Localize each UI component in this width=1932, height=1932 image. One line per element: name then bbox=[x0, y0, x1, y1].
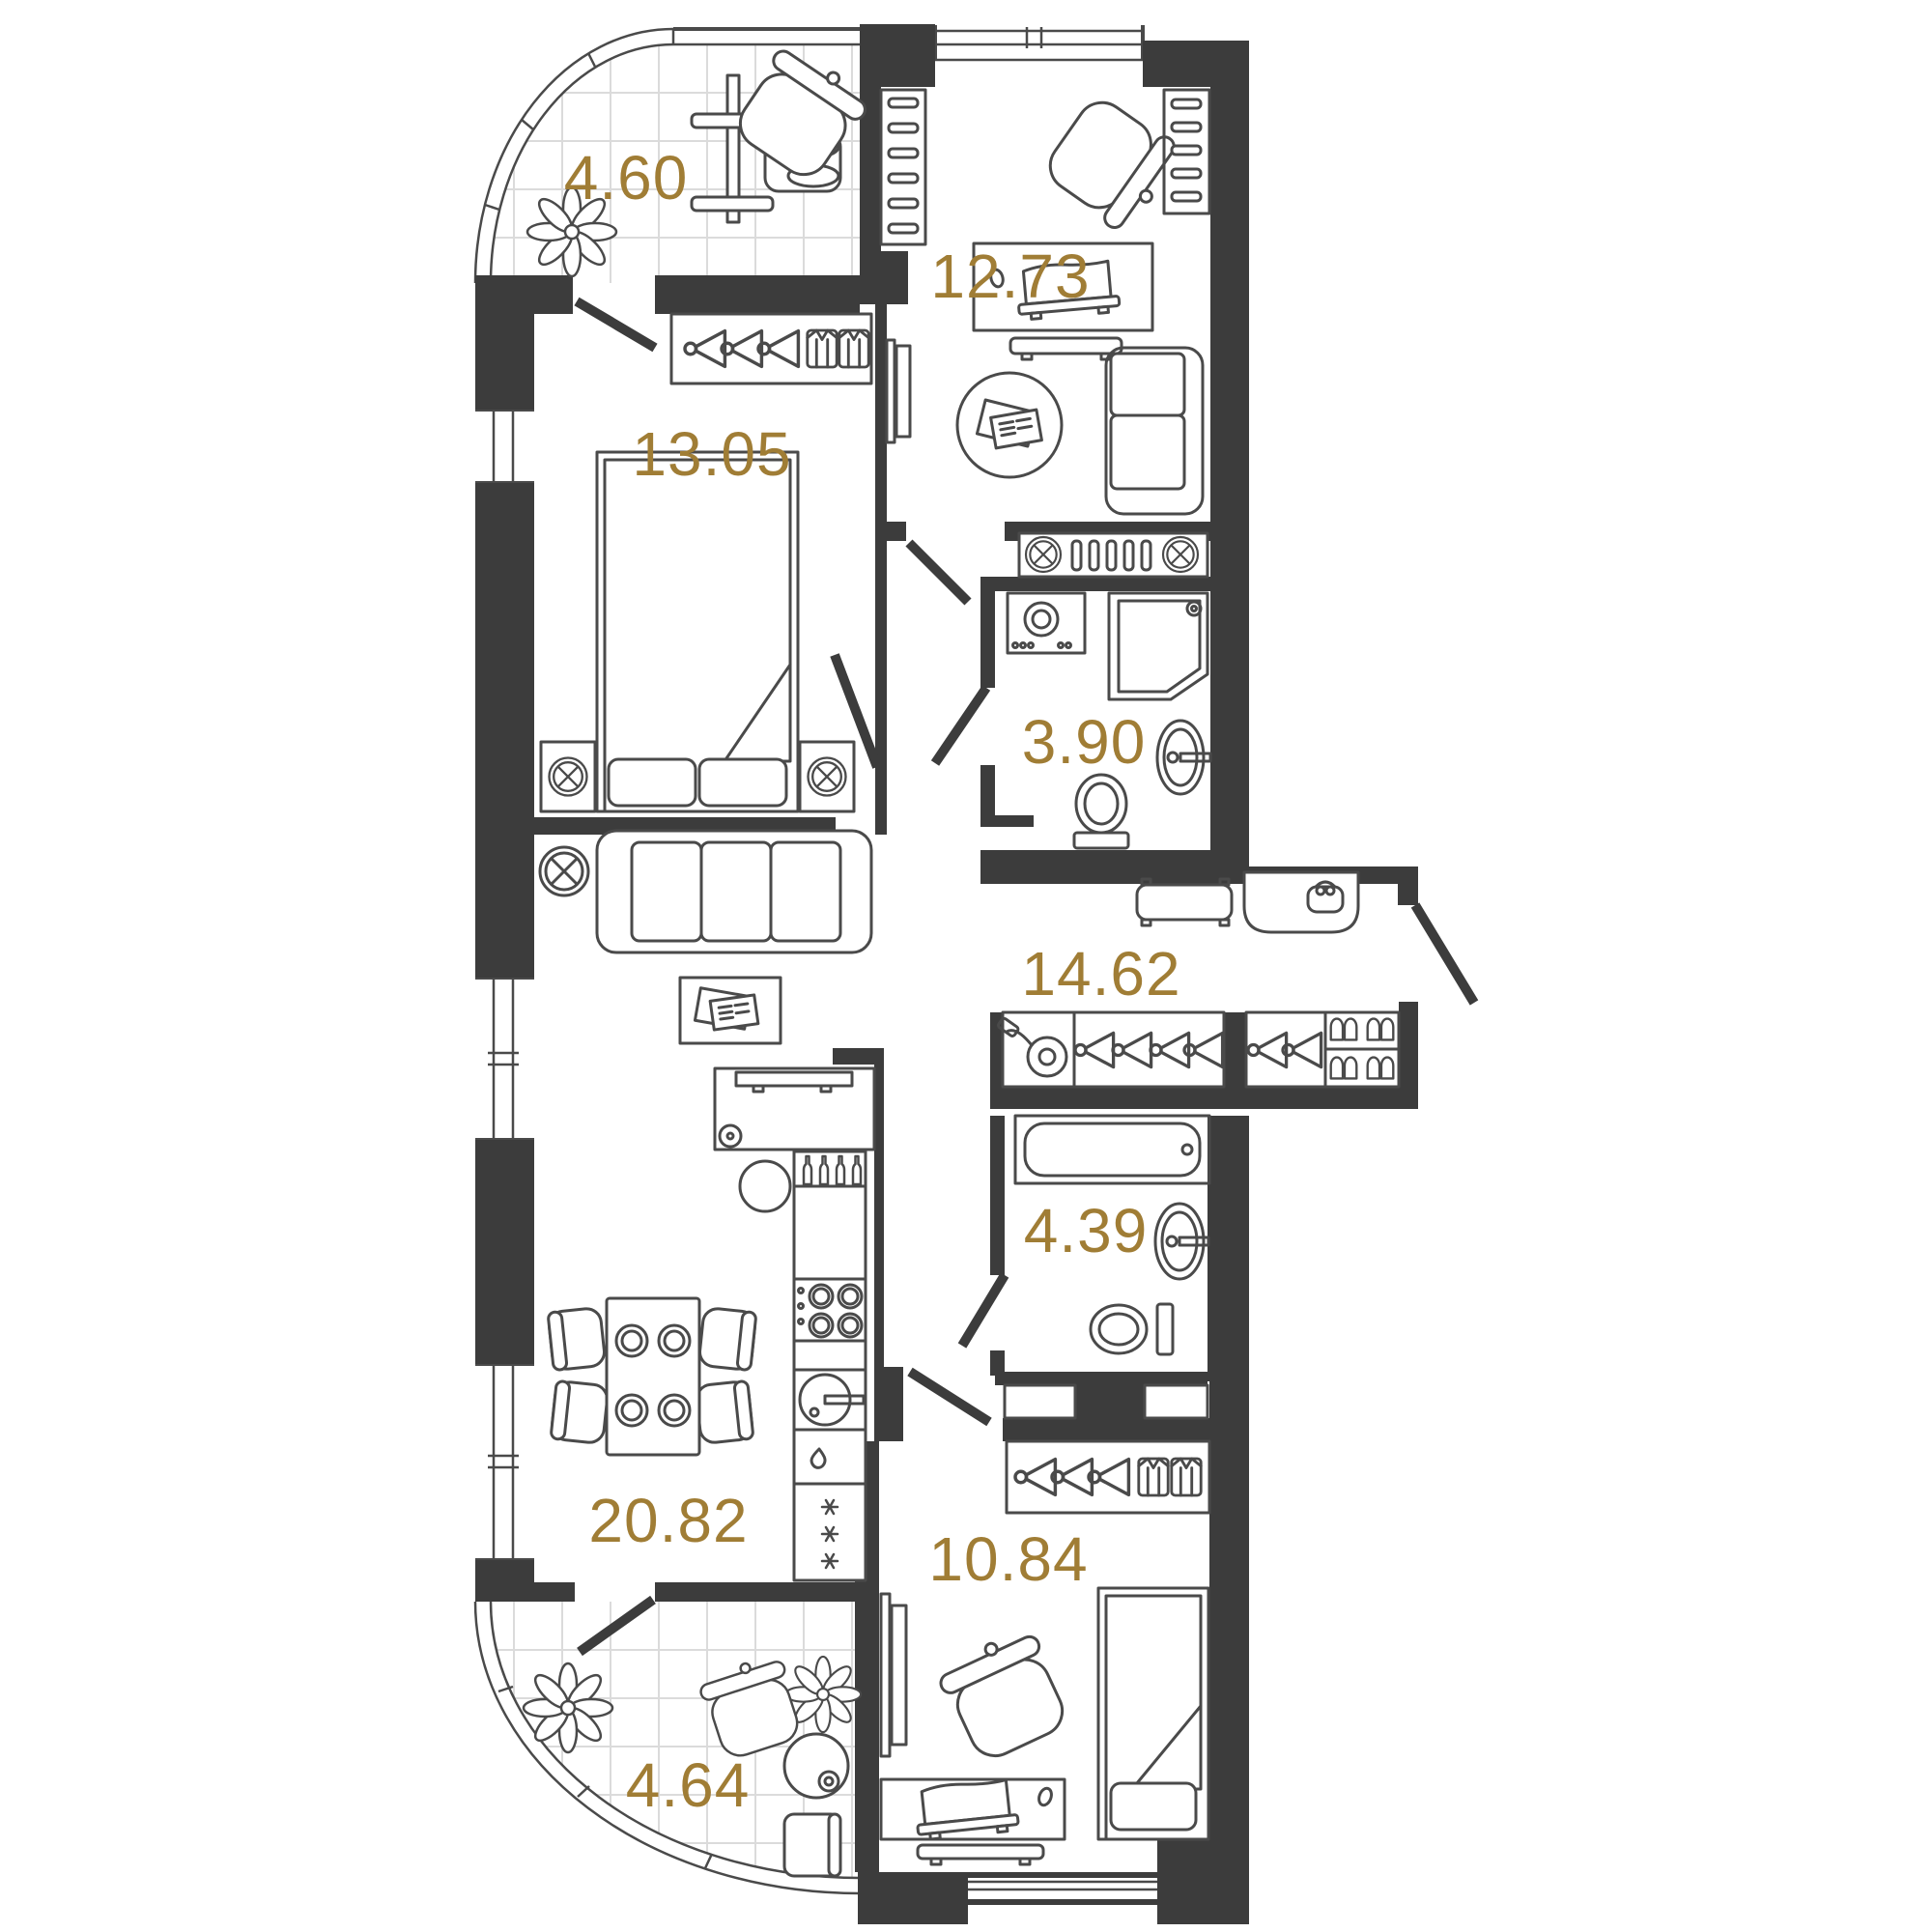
tv-icon bbox=[887, 340, 910, 442]
toilet-icon bbox=[1074, 775, 1128, 848]
wardrobe-icon bbox=[1007, 1441, 1209, 1513]
bottom-window bbox=[968, 1882, 1157, 1889]
label-bedroom-second: 10.84 bbox=[928, 1524, 1088, 1594]
label-room-top: 12.73 bbox=[930, 241, 1090, 311]
kitchen-counter bbox=[794, 1151, 866, 1580]
label-balcony-bottom: 4.64 bbox=[626, 1750, 751, 1820]
bench-icon bbox=[1137, 879, 1232, 925]
left-window-3 bbox=[475, 1364, 534, 1560]
floor-plan-drawing: 4.60 12.73 13.05 3.90 14.62 4.39 20.82 1… bbox=[0, 0, 1932, 1932]
label-bathroom-bath: 4.39 bbox=[1024, 1196, 1149, 1265]
floor-plan: 4.60 12.73 13.05 3.90 14.62 4.39 20.82 1… bbox=[0, 0, 1932, 1932]
door-room-top bbox=[909, 543, 968, 602]
label-bathroom-shower: 3.90 bbox=[1022, 707, 1147, 777]
coffee-table-icon bbox=[957, 373, 1062, 477]
desk-icon bbox=[881, 1778, 1065, 1864]
tv-icon bbox=[881, 1594, 906, 1756]
washing-machine-icon bbox=[1008, 593, 1085, 653]
fridge-icon bbox=[794, 1484, 866, 1580]
sofa-icon bbox=[597, 831, 871, 952]
double-bed-icon bbox=[597, 452, 798, 811]
single-bed-icon bbox=[1098, 1588, 1208, 1839]
label-kitchen-living: 20.82 bbox=[588, 1486, 748, 1555]
wardrobe-icon bbox=[671, 314, 871, 384]
chair-icon bbox=[784, 1814, 840, 1876]
vent-unit bbox=[1019, 533, 1207, 577]
door-bathroom-shower bbox=[935, 688, 986, 763]
shower-icon bbox=[1109, 593, 1207, 699]
label-bedroom-main: 13.05 bbox=[632, 419, 791, 489]
left-window-2 bbox=[475, 978, 534, 1140]
plant-icon bbox=[524, 1663, 612, 1752]
shelf-icon bbox=[881, 90, 925, 244]
sofa-icon bbox=[1106, 348, 1203, 514]
round-table-icon bbox=[784, 1734, 848, 1798]
coffee-table-icon bbox=[680, 978, 781, 1043]
kitchen-sink-icon bbox=[794, 1370, 866, 1430]
door-balcony-top bbox=[577, 301, 655, 348]
ceiling-lamp-icon bbox=[540, 847, 588, 895]
hall-closet bbox=[997, 1012, 1224, 1087]
chair-icon bbox=[740, 1161, 790, 1211]
dining-table-icon bbox=[548, 1298, 756, 1455]
bathtub-icon bbox=[1015, 1116, 1209, 1183]
cooktop-icon bbox=[794, 1279, 866, 1341]
console-icon bbox=[1244, 872, 1358, 932]
sink-icon bbox=[1155, 1204, 1208, 1279]
entry-closet bbox=[1246, 1012, 1399, 1087]
sink-icon bbox=[1157, 721, 1210, 794]
door-entry bbox=[1415, 905, 1474, 1003]
tub-chair-icon bbox=[933, 1625, 1074, 1766]
toilet-icon bbox=[1091, 1304, 1173, 1354]
door-bedroom-second bbox=[910, 1372, 989, 1422]
room-top-window bbox=[935, 25, 1143, 60]
shelf-icon bbox=[1164, 90, 1209, 213]
bag-icon bbox=[1308, 882, 1343, 912]
door-balcony-bottom bbox=[580, 1600, 653, 1652]
nightstand-icon bbox=[800, 742, 854, 811]
left-window-1 bbox=[475, 410, 534, 483]
label-hallway: 14.62 bbox=[1021, 939, 1180, 1009]
nightstand-icon bbox=[541, 742, 595, 811]
label-balcony-top: 4.60 bbox=[564, 143, 689, 213]
door-bathroom-bath bbox=[962, 1275, 1005, 1346]
